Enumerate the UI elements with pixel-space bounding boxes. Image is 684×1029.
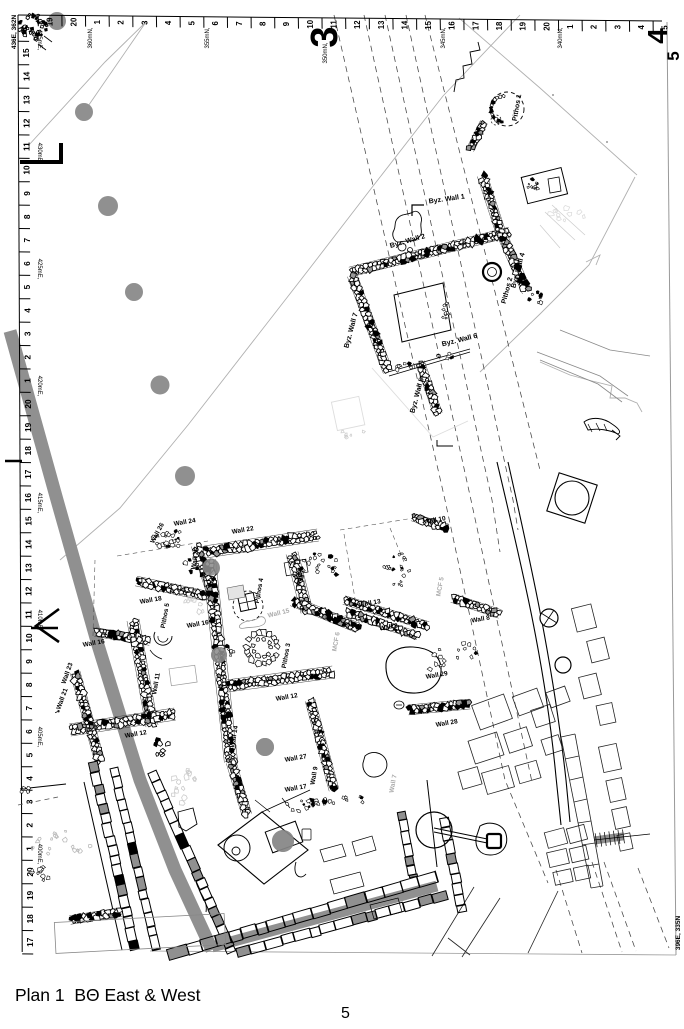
svg-text:15: 15 [23,516,33,526]
svg-text:13: 13 [23,563,33,573]
svg-text:5: 5 [341,1005,350,1022]
svg-text:16: 16 [448,21,457,30]
svg-text:4: 4 [24,776,34,781]
svg-text:11: 11 [22,142,32,151]
svg-text:5: 5 [664,51,683,60]
svg-text:7: 7 [235,21,244,25]
svg-text:9: 9 [282,21,291,26]
svg-text:3: 3 [140,20,149,25]
svg-text:18: 18 [23,446,33,456]
svg-text:2: 2 [590,24,599,29]
svg-text:15: 15 [424,20,433,29]
svg-text:405mE,: 405mE, [36,727,42,748]
svg-text:4: 4 [642,28,673,44]
svg-text:340mN,: 340mN, [558,27,564,48]
svg-text:12: 12 [353,20,362,29]
svg-text:5: 5 [24,752,34,757]
svg-text:15: 15 [21,48,31,58]
svg-text:8: 8 [24,682,34,687]
svg-text:3: 3 [613,24,622,29]
svg-text:11: 11 [24,610,34,619]
svg-text:3: 3 [25,799,35,804]
svg-text:425mE,: 425mE, [36,259,42,280]
svg-text:14: 14 [23,539,33,549]
svg-text:20: 20 [69,17,78,26]
svg-text:19: 19 [23,422,33,432]
svg-text:345mN,: 345mN, [441,27,447,48]
svg-text:8: 8 [22,214,32,219]
svg-text:4: 4 [164,20,173,25]
svg-text:10: 10 [24,633,34,643]
svg-text:400mE,: 400mE, [36,844,42,865]
svg-text:12: 12 [24,586,34,596]
svg-text:6: 6 [211,21,220,26]
svg-text:4: 4 [22,308,32,313]
svg-text:3: 3 [304,26,346,47]
svg-text:7: 7 [24,706,34,711]
svg-text:20: 20 [23,399,33,409]
svg-text:9: 9 [22,191,32,196]
svg-text:17: 17 [23,469,33,479]
svg-text:1: 1 [566,24,575,29]
svg-text:20: 20 [542,21,551,30]
svg-text:6: 6 [24,729,34,734]
svg-text:13: 13 [21,95,31,105]
svg-text:19: 19 [519,21,528,30]
svg-text:10: 10 [22,165,32,175]
svg-text:3: 3 [22,331,32,336]
svg-text:2: 2 [25,823,35,828]
svg-text:5: 5 [22,284,32,289]
svg-text:17: 17 [471,21,480,30]
svg-text:14: 14 [21,71,31,81]
svg-text:360mN,: 360mN, [88,27,94,48]
svg-text:12: 12 [21,118,31,128]
svg-text:396E, 335N: 396E, 335N [675,916,682,951]
svg-text:18: 18 [495,21,504,30]
svg-text:6: 6 [22,261,32,266]
svg-text:5: 5 [188,20,197,25]
svg-text:436E, 362N: 436E, 362N [11,15,18,50]
svg-text:1: 1 [93,19,102,24]
svg-text:Plan 1 BΘ East & West: Plan 1 BΘ East & West [15,985,201,1005]
svg-text:13: 13 [377,20,386,29]
svg-text:9: 9 [24,659,34,664]
svg-text:14: 14 [400,20,409,29]
svg-text:2: 2 [23,355,33,360]
svg-text:415mE,: 415mE, [36,493,42,514]
svg-text:16: 16 [23,493,33,503]
svg-text:1: 1 [23,378,33,383]
svg-text:2: 2 [117,20,126,25]
svg-text:7: 7 [22,238,32,243]
svg-text:19: 19 [25,890,35,900]
svg-text:18: 18 [25,914,35,924]
svg-text:17: 17 [25,937,35,947]
svg-text:8: 8 [259,21,268,26]
svg-text:420mE,: 420mE, [36,376,42,397]
svg-text:355mN,: 355mN, [205,27,211,48]
